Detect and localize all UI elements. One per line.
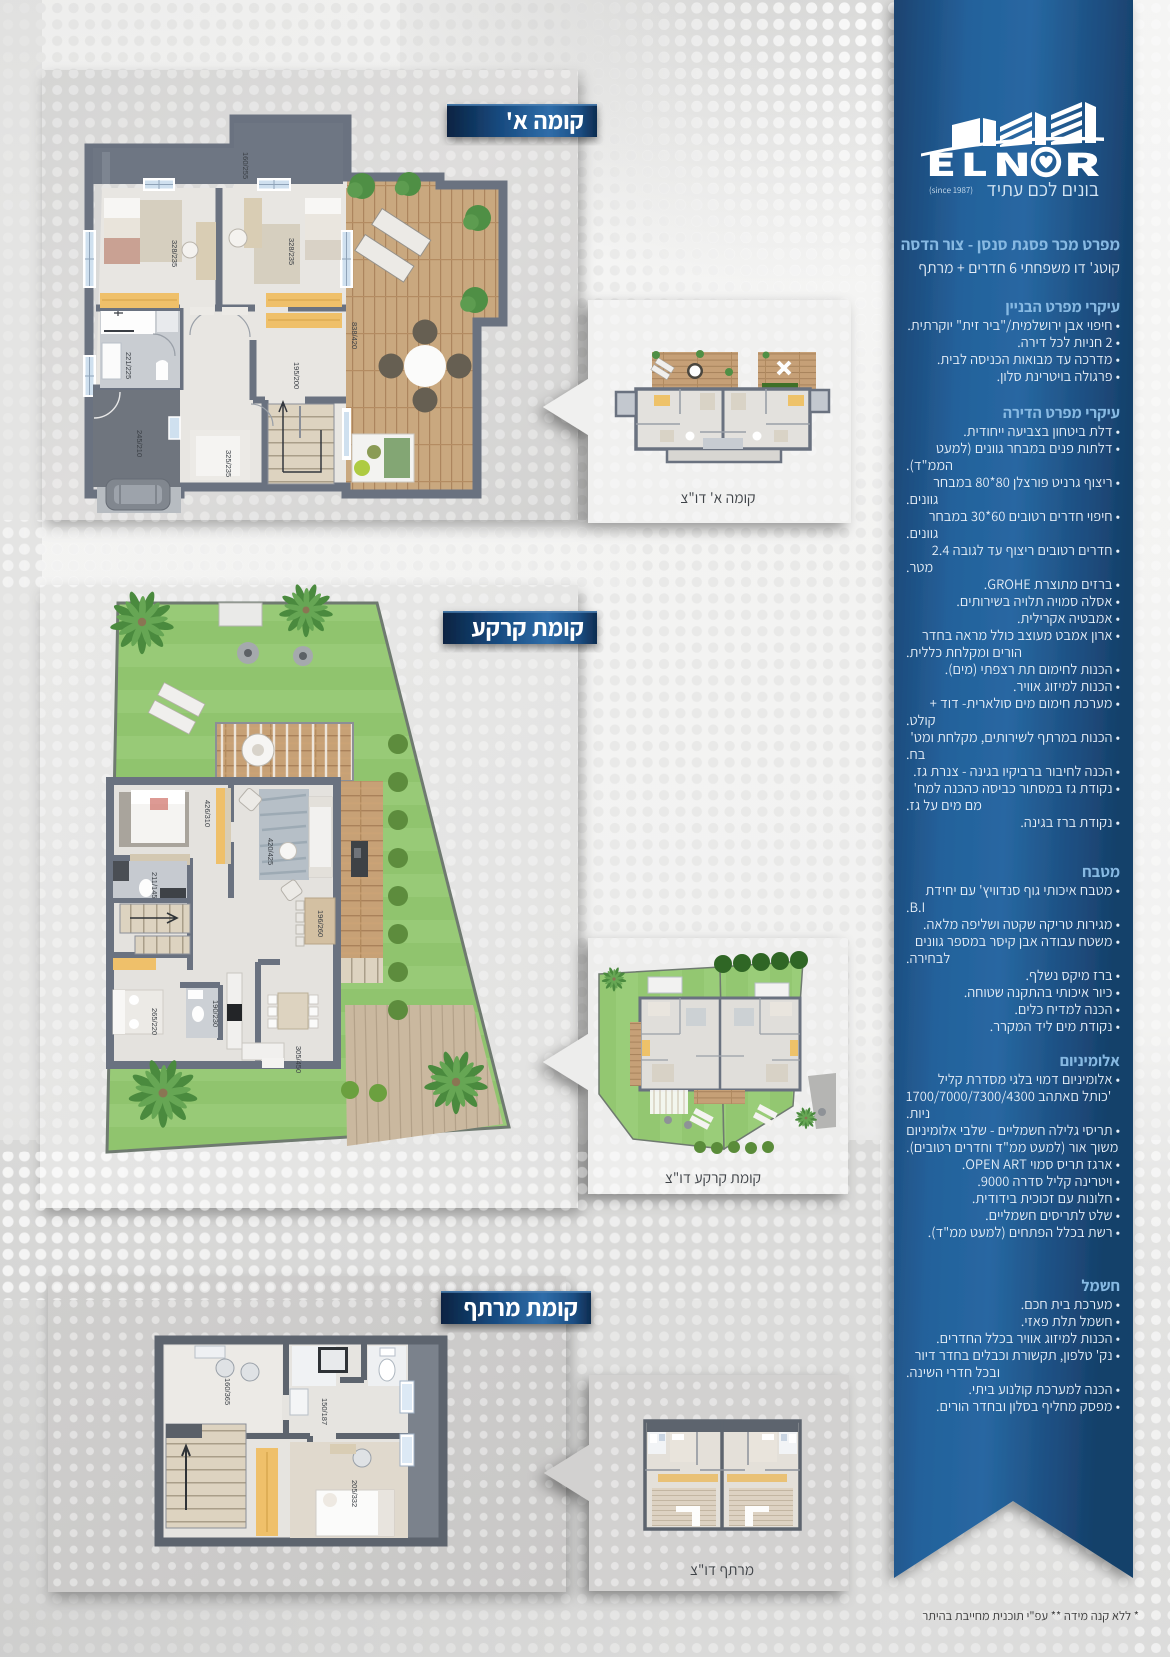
- svg-text:305/450: 305/450: [294, 1046, 303, 1073]
- svg-text:190/230: 190/230: [211, 1000, 220, 1027]
- svg-text:196/260: 196/260: [316, 910, 325, 937]
- svg-text:150/187: 150/187: [320, 1398, 329, 1425]
- svg-text:420/425: 420/425: [266, 838, 275, 865]
- svg-text:426/310: 426/310: [203, 800, 212, 827]
- svg-text:838/420: 838/420: [350, 322, 359, 349]
- svg-text:221/225: 221/225: [124, 352, 133, 379]
- svg-text:328/235: 328/235: [170, 240, 179, 267]
- svg-text:195/200: 195/200: [292, 362, 301, 389]
- svg-text:328/235: 328/235: [287, 238, 296, 265]
- svg-text:325/235: 325/235: [224, 450, 233, 477]
- svg-text:265/220: 265/220: [150, 1008, 159, 1035]
- svg-text:205/332: 205/332: [350, 1480, 359, 1507]
- svg-text:160/365: 160/365: [223, 1378, 232, 1405]
- svg-text:211/145: 211/145: [150, 872, 159, 899]
- svg-text:245/210: 245/210: [135, 430, 144, 457]
- svg-text:160/255: 160/255: [241, 152, 250, 179]
